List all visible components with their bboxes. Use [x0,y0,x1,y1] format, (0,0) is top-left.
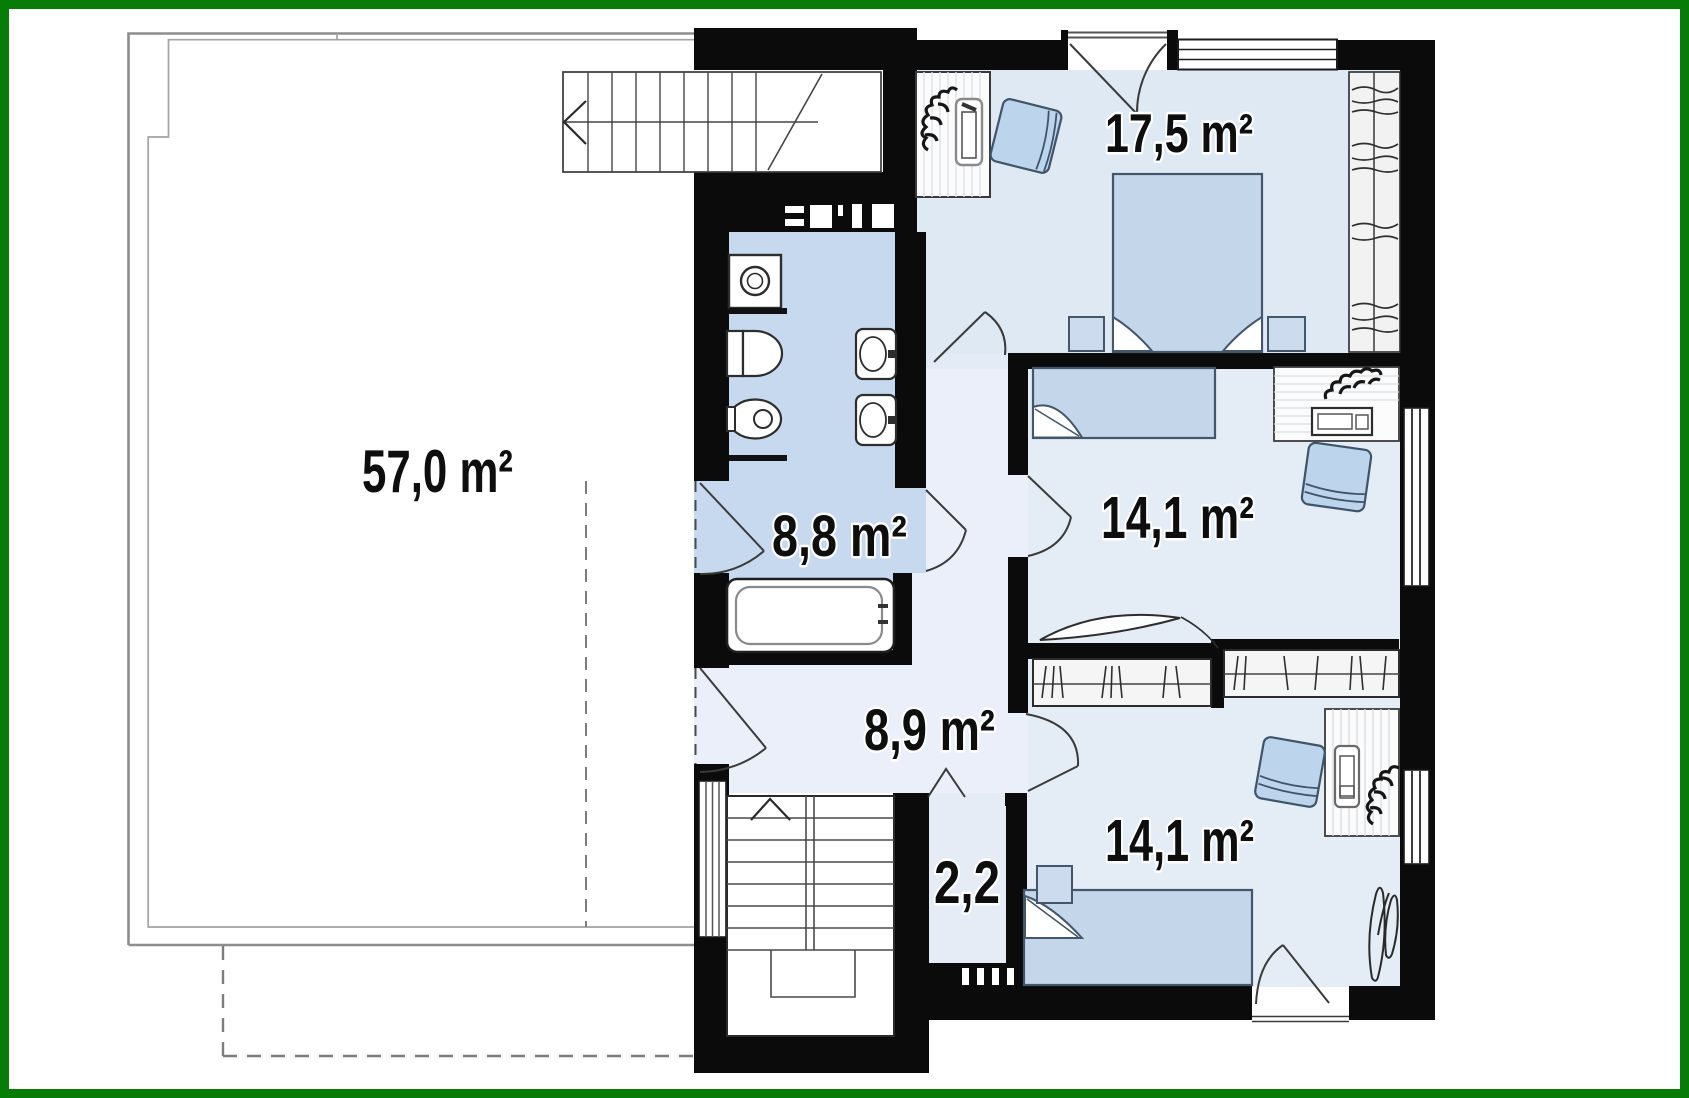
svg-text:14,1 m²: 14,1 m² [1105,808,1254,874]
svg-text:17,5 m²: 17,5 m² [1105,102,1253,164]
svg-text:57,0 m²: 57,0 m² [362,438,513,505]
svg-text:8,9 m²: 8,9 m² [864,698,995,763]
svg-text:14,1 m²: 14,1 m² [1101,485,1254,551]
svg-text:8,8 m²: 8,8 m² [772,504,907,569]
svg-text:2,2: 2,2 [934,849,1000,916]
